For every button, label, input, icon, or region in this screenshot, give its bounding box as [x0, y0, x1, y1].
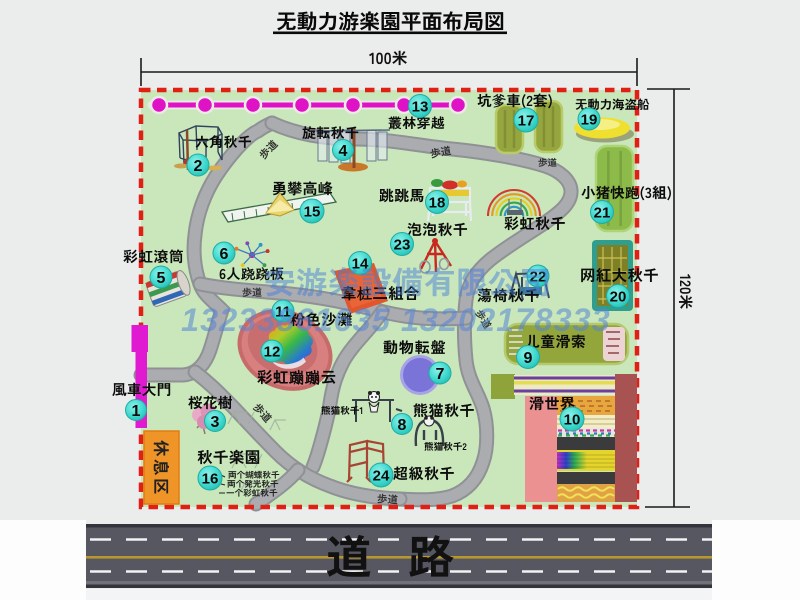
svg-text:18: 18 — [429, 194, 446, 211]
svg-text:15: 15 — [304, 203, 321, 220]
svg-text:23: 23 — [394, 236, 411, 253]
svg-text:8: 8 — [398, 417, 407, 434]
svg-text:7: 7 — [436, 366, 445, 383]
svg-text:16: 16 — [202, 470, 219, 487]
svg-text:5: 5 — [157, 270, 166, 287]
svg-text:10: 10 — [564, 411, 581, 428]
svg-text:13233861635 13202178333: 13233861635 13202178333 — [181, 302, 611, 338]
svg-text:6: 6 — [220, 246, 229, 263]
svg-text:20: 20 — [610, 288, 627, 305]
svg-text:17: 17 — [518, 112, 535, 129]
svg-text:12: 12 — [264, 343, 281, 360]
svg-text:19: 19 — [581, 111, 598, 128]
svg-text:13: 13 — [412, 98, 429, 115]
svg-text:2: 2 — [194, 158, 203, 175]
svg-text:24: 24 — [373, 467, 390, 484]
svg-text:1: 1 — [132, 403, 141, 420]
svg-text:21: 21 — [594, 204, 611, 221]
svg-text:4: 4 — [339, 143, 348, 160]
svg-text:9: 9 — [524, 350, 533, 367]
svg-text:3: 3 — [211, 414, 220, 431]
